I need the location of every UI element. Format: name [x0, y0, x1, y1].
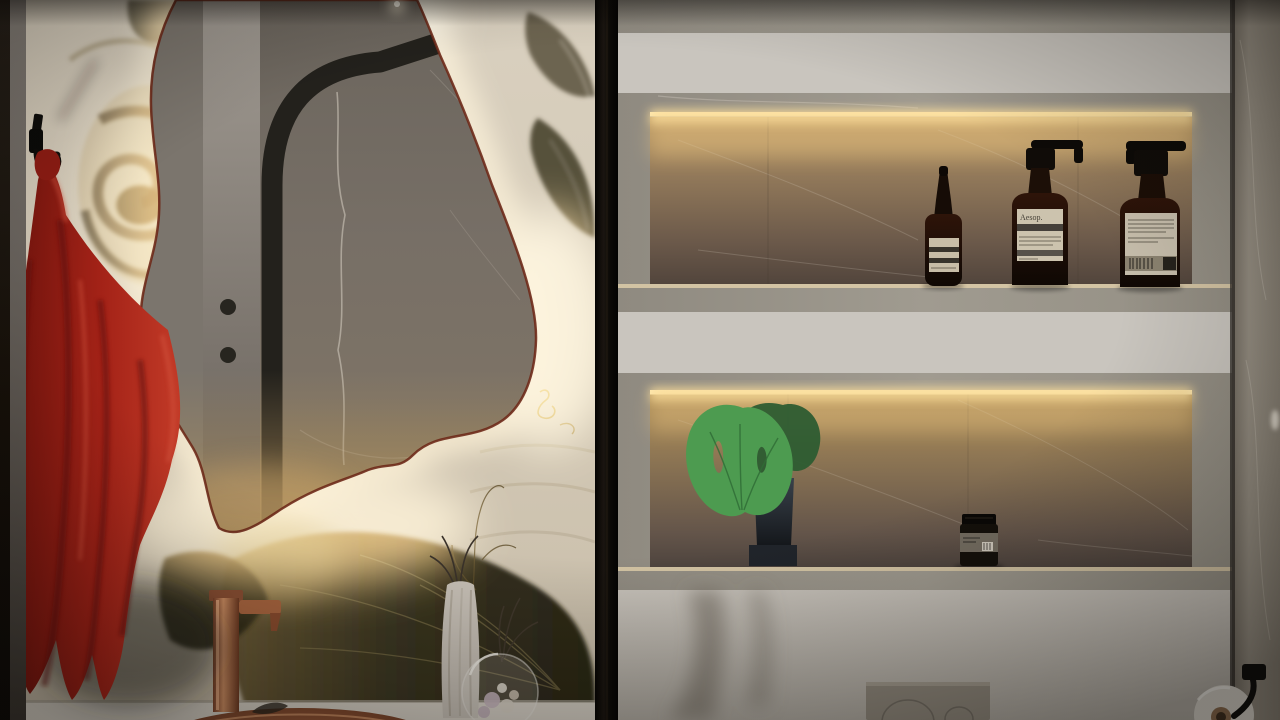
niche2-sill-highlight — [618, 567, 1232, 571]
marble-pillar — [1230, 0, 1280, 720]
niche-wall-scene: Aesop. — [618, 0, 1280, 720]
bathroom-photo: Aesop. — [0, 0, 1280, 720]
marble-band-top — [618, 0, 1232, 33]
left-door-edge — [0, 0, 10, 720]
plant-pot-base — [749, 545, 797, 566]
left-wall-edge — [10, 0, 26, 720]
pillar-edge-shadow — [1230, 0, 1235, 720]
niche-bottom — [618, 373, 1232, 590]
vanity-scene — [0, 0, 618, 720]
light-band-1 — [618, 33, 1232, 93]
led-wash-1 — [650, 117, 1192, 157]
divider-seam — [606, 0, 608, 720]
mirror-reflection-knob — [220, 299, 236, 315]
bottle-brand-text: Aesop. — [1020, 213, 1042, 222]
flush-plate — [866, 682, 990, 720]
light-band-2 — [618, 312, 1232, 373]
niche-top: Aesop. — [618, 93, 1232, 312]
mirror-reflection-knob — [220, 347, 236, 363]
partition-divider — [595, 0, 618, 720]
lower-wall — [618, 590, 1232, 720]
niche2-sill — [618, 571, 1232, 590]
pillar-glint — [1271, 410, 1279, 430]
